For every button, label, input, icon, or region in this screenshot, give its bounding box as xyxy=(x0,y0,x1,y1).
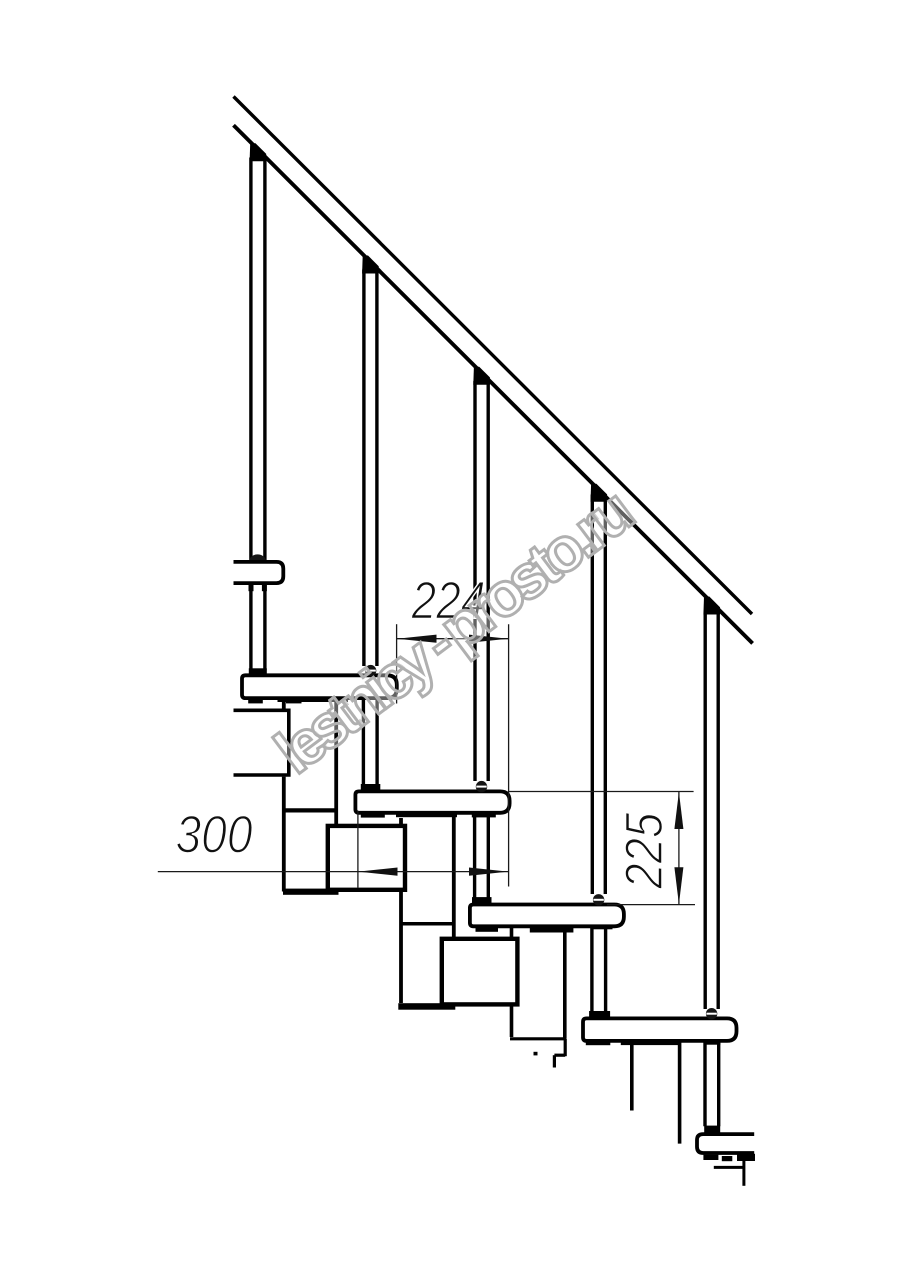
svg-text:225: 225 xyxy=(615,812,674,889)
svg-text:300: 300 xyxy=(176,806,253,865)
